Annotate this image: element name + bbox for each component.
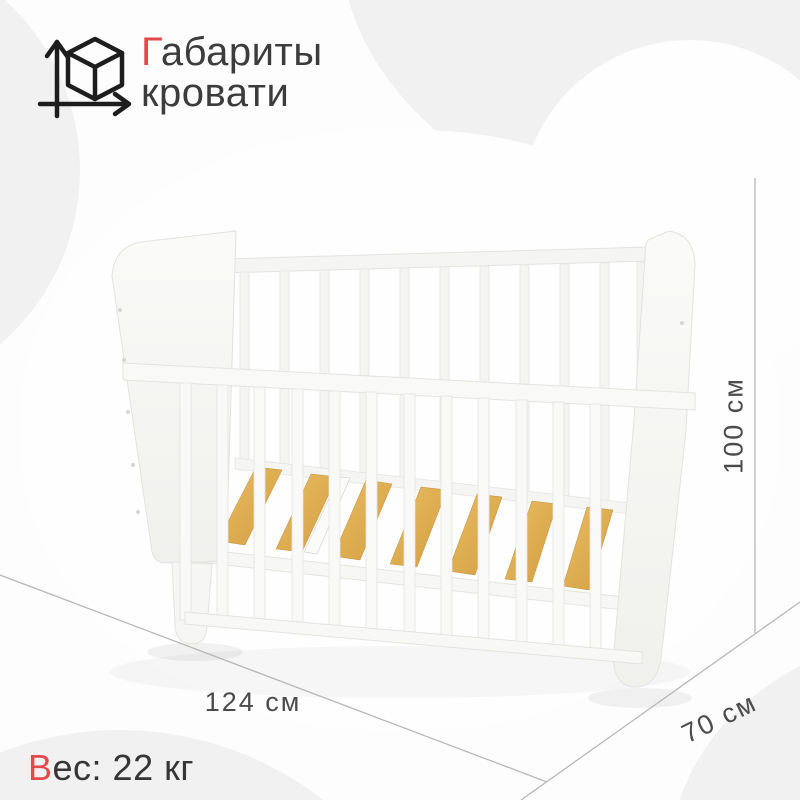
- axes-cube-icon: [15, 12, 133, 128]
- crib-leg-shadow: [147, 643, 243, 661]
- title-accent-letter: Г: [141, 30, 161, 74]
- page-title: Габариты кровати: [141, 32, 323, 114]
- crib-left-leg: [172, 562, 212, 644]
- crib-leg-shadow: [588, 688, 692, 708]
- dimension-label-length: 124 см: [173, 687, 333, 718]
- dimension-label-height: 100 см: [719, 366, 750, 486]
- product-dimensions-infographic: Габариты кровати 124 см 70 см 100 см Вес…: [0, 0, 800, 800]
- weight-label: Вес: 22 кг: [28, 747, 194, 789]
- crib-right-panel: [614, 231, 695, 687]
- header: Габариты кровати: [15, 12, 323, 128]
- weight-accent-letter: В: [28, 747, 53, 788]
- screw-dot: [680, 321, 684, 325]
